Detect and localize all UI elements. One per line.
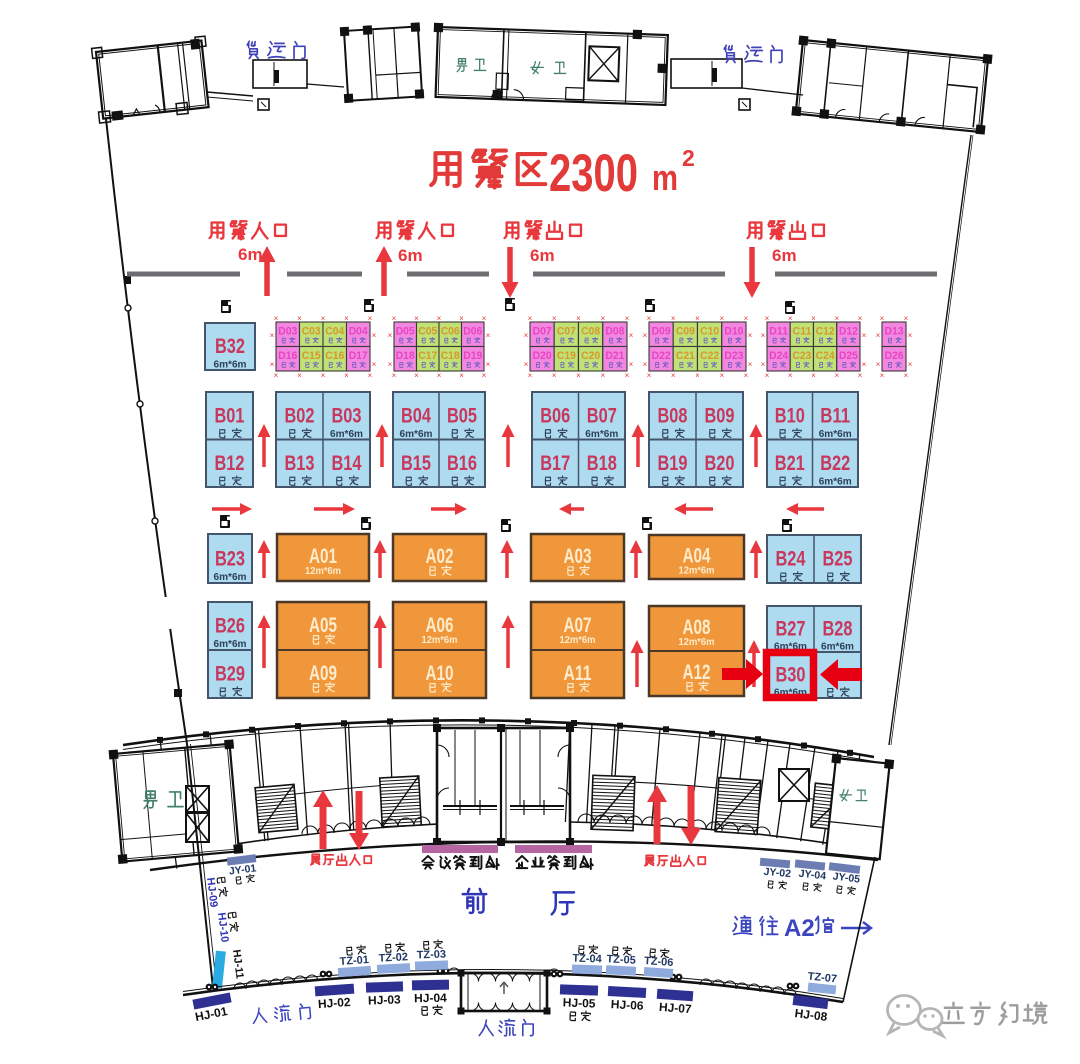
svg-text:×: × — [761, 331, 766, 340]
svg-text:×: × — [459, 371, 464, 380]
svg-text:B12: B12 — [215, 452, 245, 475]
svg-text:×: × — [486, 331, 491, 340]
svg-text:×: × — [647, 371, 652, 380]
svg-text:×: × — [876, 360, 881, 369]
svg-text:×: × — [392, 371, 397, 380]
svg-text:×: × — [321, 371, 326, 380]
svg-text:2300: 2300 — [549, 144, 638, 203]
svg-text:×: × — [880, 371, 885, 380]
svg-text:C18: C18 — [441, 350, 460, 362]
svg-text:B24: B24 — [776, 548, 806, 571]
svg-text:×: × — [880, 314, 885, 323]
svg-text:B19: B19 — [658, 452, 688, 475]
svg-text:HJ-02: HJ-02 — [317, 995, 351, 1011]
svg-text:×: × — [414, 314, 419, 323]
svg-text:D21: D21 — [605, 350, 624, 362]
svg-text:×: × — [437, 371, 442, 380]
svg-text:B11: B11 — [820, 404, 850, 427]
svg-text:×: × — [904, 314, 909, 323]
svg-text:JY-02: JY-02 — [763, 866, 792, 880]
svg-text:B28: B28 — [823, 617, 853, 640]
svg-text:B08: B08 — [658, 404, 688, 427]
svg-text:×: × — [528, 371, 533, 380]
svg-text:×: × — [765, 314, 770, 323]
svg-text:C06: C06 — [441, 326, 460, 338]
svg-text:×: × — [274, 314, 279, 323]
svg-text:×: × — [858, 371, 863, 380]
svg-text:12m*6m: 12m*6m — [422, 634, 458, 646]
svg-text:×: × — [576, 314, 581, 323]
svg-text:×: × — [862, 331, 867, 340]
svg-text:D06: D06 — [463, 326, 482, 338]
svg-text:×: × — [744, 371, 749, 380]
svg-text:×: × — [388, 360, 393, 369]
svg-text:C05: C05 — [418, 326, 437, 338]
svg-text:×: × — [643, 331, 648, 340]
svg-text:B30: B30 — [776, 663, 806, 686]
svg-text:HJ-07: HJ-07 — [658, 1000, 692, 1016]
svg-text:m: m — [652, 157, 678, 198]
svg-text:×: × — [671, 371, 676, 380]
svg-text:C22: C22 — [700, 350, 719, 362]
svg-text:×: × — [437, 314, 442, 323]
svg-text:C23: C23 — [792, 350, 811, 362]
svg-text:×: × — [600, 371, 605, 380]
svg-text:B15: B15 — [401, 452, 431, 475]
svg-text:6m: 6m — [772, 246, 797, 265]
svg-text:×: × — [876, 331, 881, 340]
svg-text:D20: D20 — [533, 350, 552, 362]
svg-text:×: × — [671, 314, 676, 323]
svg-text:C19: C19 — [557, 350, 576, 362]
svg-text:×: × — [695, 371, 700, 380]
svg-text:B29: B29 — [215, 663, 245, 686]
svg-text:×: × — [695, 314, 700, 323]
svg-text:D11: D11 — [769, 326, 788, 338]
svg-text:D24: D24 — [769, 350, 789, 362]
svg-text:×: × — [629, 331, 634, 340]
svg-text:A10: A10 — [426, 662, 454, 685]
svg-text:C17: C17 — [418, 350, 437, 362]
svg-text:×: × — [486, 360, 491, 369]
svg-text:TZ-05: TZ-05 — [606, 953, 636, 967]
svg-text:×: × — [297, 371, 302, 380]
svg-text:×: × — [625, 314, 630, 323]
svg-text:A11: A11 — [564, 662, 592, 685]
svg-text:C24: C24 — [816, 350, 836, 362]
svg-text:C10: C10 — [700, 326, 719, 338]
svg-text:D19: D19 — [463, 350, 482, 362]
svg-text:6m*6m: 6m*6m — [821, 641, 854, 653]
svg-text:D04: D04 — [349, 326, 369, 338]
svg-text:B10: B10 — [775, 404, 805, 427]
svg-text:B02: B02 — [285, 404, 315, 427]
svg-text:B32: B32 — [215, 335, 245, 358]
svg-text:A02: A02 — [426, 545, 454, 568]
svg-text:B14: B14 — [332, 452, 362, 475]
svg-text:×: × — [372, 331, 377, 340]
svg-text:D05: D05 — [396, 326, 415, 338]
svg-text:6m*6m: 6m*6m — [400, 428, 433, 440]
svg-text:×: × — [834, 371, 839, 380]
svg-text:B18: B18 — [587, 452, 617, 475]
svg-text:HJ-06: HJ-06 — [611, 997, 645, 1013]
svg-text:×: × — [788, 371, 793, 380]
svg-text:×: × — [862, 360, 867, 369]
svg-text:C07: C07 — [557, 326, 576, 338]
svg-text:×: × — [834, 314, 839, 323]
svg-text:×: × — [524, 331, 529, 340]
svg-text:C09: C09 — [676, 326, 695, 338]
svg-text:×: × — [392, 314, 397, 323]
svg-text:×: × — [719, 314, 724, 323]
svg-text:D22: D22 — [652, 350, 671, 362]
svg-text:×: × — [908, 360, 913, 369]
svg-text:B16: B16 — [447, 452, 477, 475]
svg-text:×: × — [719, 371, 724, 380]
svg-text:D09: D09 — [652, 326, 671, 338]
svg-text:A03: A03 — [564, 545, 592, 568]
svg-text:C16: C16 — [325, 350, 344, 362]
svg-text:D13: D13 — [885, 326, 904, 338]
svg-text:B05: B05 — [447, 404, 477, 427]
svg-text:×: × — [904, 371, 909, 380]
svg-text:×: × — [372, 360, 377, 369]
svg-text:B04: B04 — [401, 404, 431, 427]
svg-text:×: × — [552, 371, 557, 380]
svg-text:C03: C03 — [302, 326, 321, 338]
svg-text:D26: D26 — [885, 350, 904, 362]
svg-text:×: × — [274, 371, 279, 380]
svg-text:×: × — [368, 314, 373, 323]
svg-text:6m*6m: 6m*6m — [214, 571, 247, 583]
svg-text:×: × — [643, 360, 648, 369]
svg-text:2: 2 — [682, 145, 695, 171]
svg-text:6m: 6m — [398, 246, 423, 265]
svg-text:B07: B07 — [587, 404, 617, 427]
svg-text:×: × — [748, 360, 753, 369]
svg-text:D10: D10 — [724, 326, 743, 338]
svg-text:C08: C08 — [581, 326, 600, 338]
svg-text:×: × — [647, 314, 652, 323]
svg-text:×: × — [811, 371, 816, 380]
svg-text:B27: B27 — [776, 617, 806, 640]
svg-text:D03: D03 — [278, 326, 297, 338]
svg-text:HJ-04: HJ-04 — [414, 991, 447, 1006]
svg-text:B01: B01 — [215, 404, 245, 427]
svg-text:TZ-01: TZ-01 — [339, 954, 369, 968]
svg-text:B26: B26 — [215, 615, 245, 638]
svg-text:×: × — [600, 314, 605, 323]
svg-text:D17: D17 — [349, 350, 368, 362]
svg-text:6m*6m: 6m*6m — [819, 475, 852, 487]
svg-text:×: × — [908, 331, 913, 340]
svg-text:D23: D23 — [724, 350, 743, 362]
svg-text:C20: C20 — [581, 350, 600, 362]
svg-text:×: × — [482, 371, 487, 380]
svg-text:×: × — [788, 314, 793, 323]
svg-text:×: × — [811, 314, 816, 323]
svg-text:×: × — [748, 331, 753, 340]
svg-text:×: × — [625, 371, 630, 380]
svg-text:TZ-02: TZ-02 — [378, 951, 408, 965]
svg-text:6m*6m: 6m*6m — [214, 638, 247, 650]
svg-text:D16: D16 — [278, 350, 297, 362]
svg-text:×: × — [528, 314, 533, 323]
svg-text:6m*6m: 6m*6m — [585, 428, 618, 440]
svg-text:D12: D12 — [839, 326, 858, 338]
svg-text:12m*6m: 12m*6m — [679, 636, 715, 648]
svg-text:×: × — [744, 314, 749, 323]
svg-text:C11: C11 — [792, 326, 811, 338]
svg-text:TZ-06: TZ-06 — [644, 955, 674, 969]
svg-text:×: × — [761, 360, 766, 369]
svg-text:×: × — [482, 314, 487, 323]
svg-text:6m: 6m — [530, 246, 555, 265]
svg-text:×: × — [297, 314, 302, 323]
svg-text:B09: B09 — [705, 404, 735, 427]
svg-text:×: × — [858, 314, 863, 323]
svg-text:D08: D08 — [605, 326, 624, 338]
svg-text:A2: A2 — [784, 915, 815, 942]
svg-text:6m: 6m — [238, 245, 263, 264]
svg-text:C21: C21 — [676, 350, 695, 362]
svg-text:×: × — [414, 371, 419, 380]
svg-text:×: × — [388, 331, 393, 340]
svg-text:6m*6m: 6m*6m — [214, 358, 247, 370]
svg-text:12m*6m: 12m*6m — [679, 564, 715, 576]
svg-text:×: × — [765, 371, 770, 380]
svg-text:TZ-04: TZ-04 — [572, 952, 603, 965]
svg-text:×: × — [321, 314, 326, 323]
svg-text:D18: D18 — [396, 350, 415, 362]
svg-text:6m*6m: 6m*6m — [330, 428, 363, 440]
svg-text:A12: A12 — [683, 661, 711, 684]
svg-text:D25: D25 — [839, 350, 858, 362]
svg-text:×: × — [344, 314, 349, 323]
svg-text:B03: B03 — [332, 404, 362, 427]
svg-text:12m*6m: 12m*6m — [305, 565, 341, 577]
svg-text:HJ-03: HJ-03 — [368, 992, 401, 1007]
svg-text:D07: D07 — [533, 326, 552, 338]
svg-text:C12: C12 — [816, 326, 835, 338]
svg-text:C04: C04 — [325, 326, 345, 338]
svg-text:12m*6m: 12m*6m — [560, 634, 596, 646]
svg-text:B25: B25 — [823, 548, 853, 571]
svg-text:B23: B23 — [215, 547, 245, 570]
svg-text:×: × — [270, 360, 275, 369]
svg-text:A09: A09 — [309, 662, 337, 685]
svg-text:HJ-05: HJ-05 — [563, 995, 596, 1010]
svg-text:B13: B13 — [285, 452, 315, 475]
svg-text:A05: A05 — [309, 614, 337, 637]
svg-text:6m*6m: 6m*6m — [819, 428, 852, 440]
svg-text:×: × — [576, 371, 581, 380]
svg-text:×: × — [459, 314, 464, 323]
svg-text:×: × — [344, 371, 349, 380]
svg-text:×: × — [552, 314, 557, 323]
svg-text:B20: B20 — [705, 452, 735, 475]
svg-text:B21: B21 — [775, 452, 805, 475]
svg-text:×: × — [270, 331, 275, 340]
svg-text:C15: C15 — [302, 350, 321, 362]
svg-text:×: × — [629, 360, 634, 369]
svg-text:×: × — [524, 360, 529, 369]
svg-text:B06: B06 — [540, 404, 570, 427]
svg-text:B22: B22 — [820, 452, 850, 475]
svg-text:B17: B17 — [540, 452, 570, 475]
svg-text:TZ-03: TZ-03 — [417, 948, 447, 961]
svg-text:×: × — [368, 371, 373, 380]
